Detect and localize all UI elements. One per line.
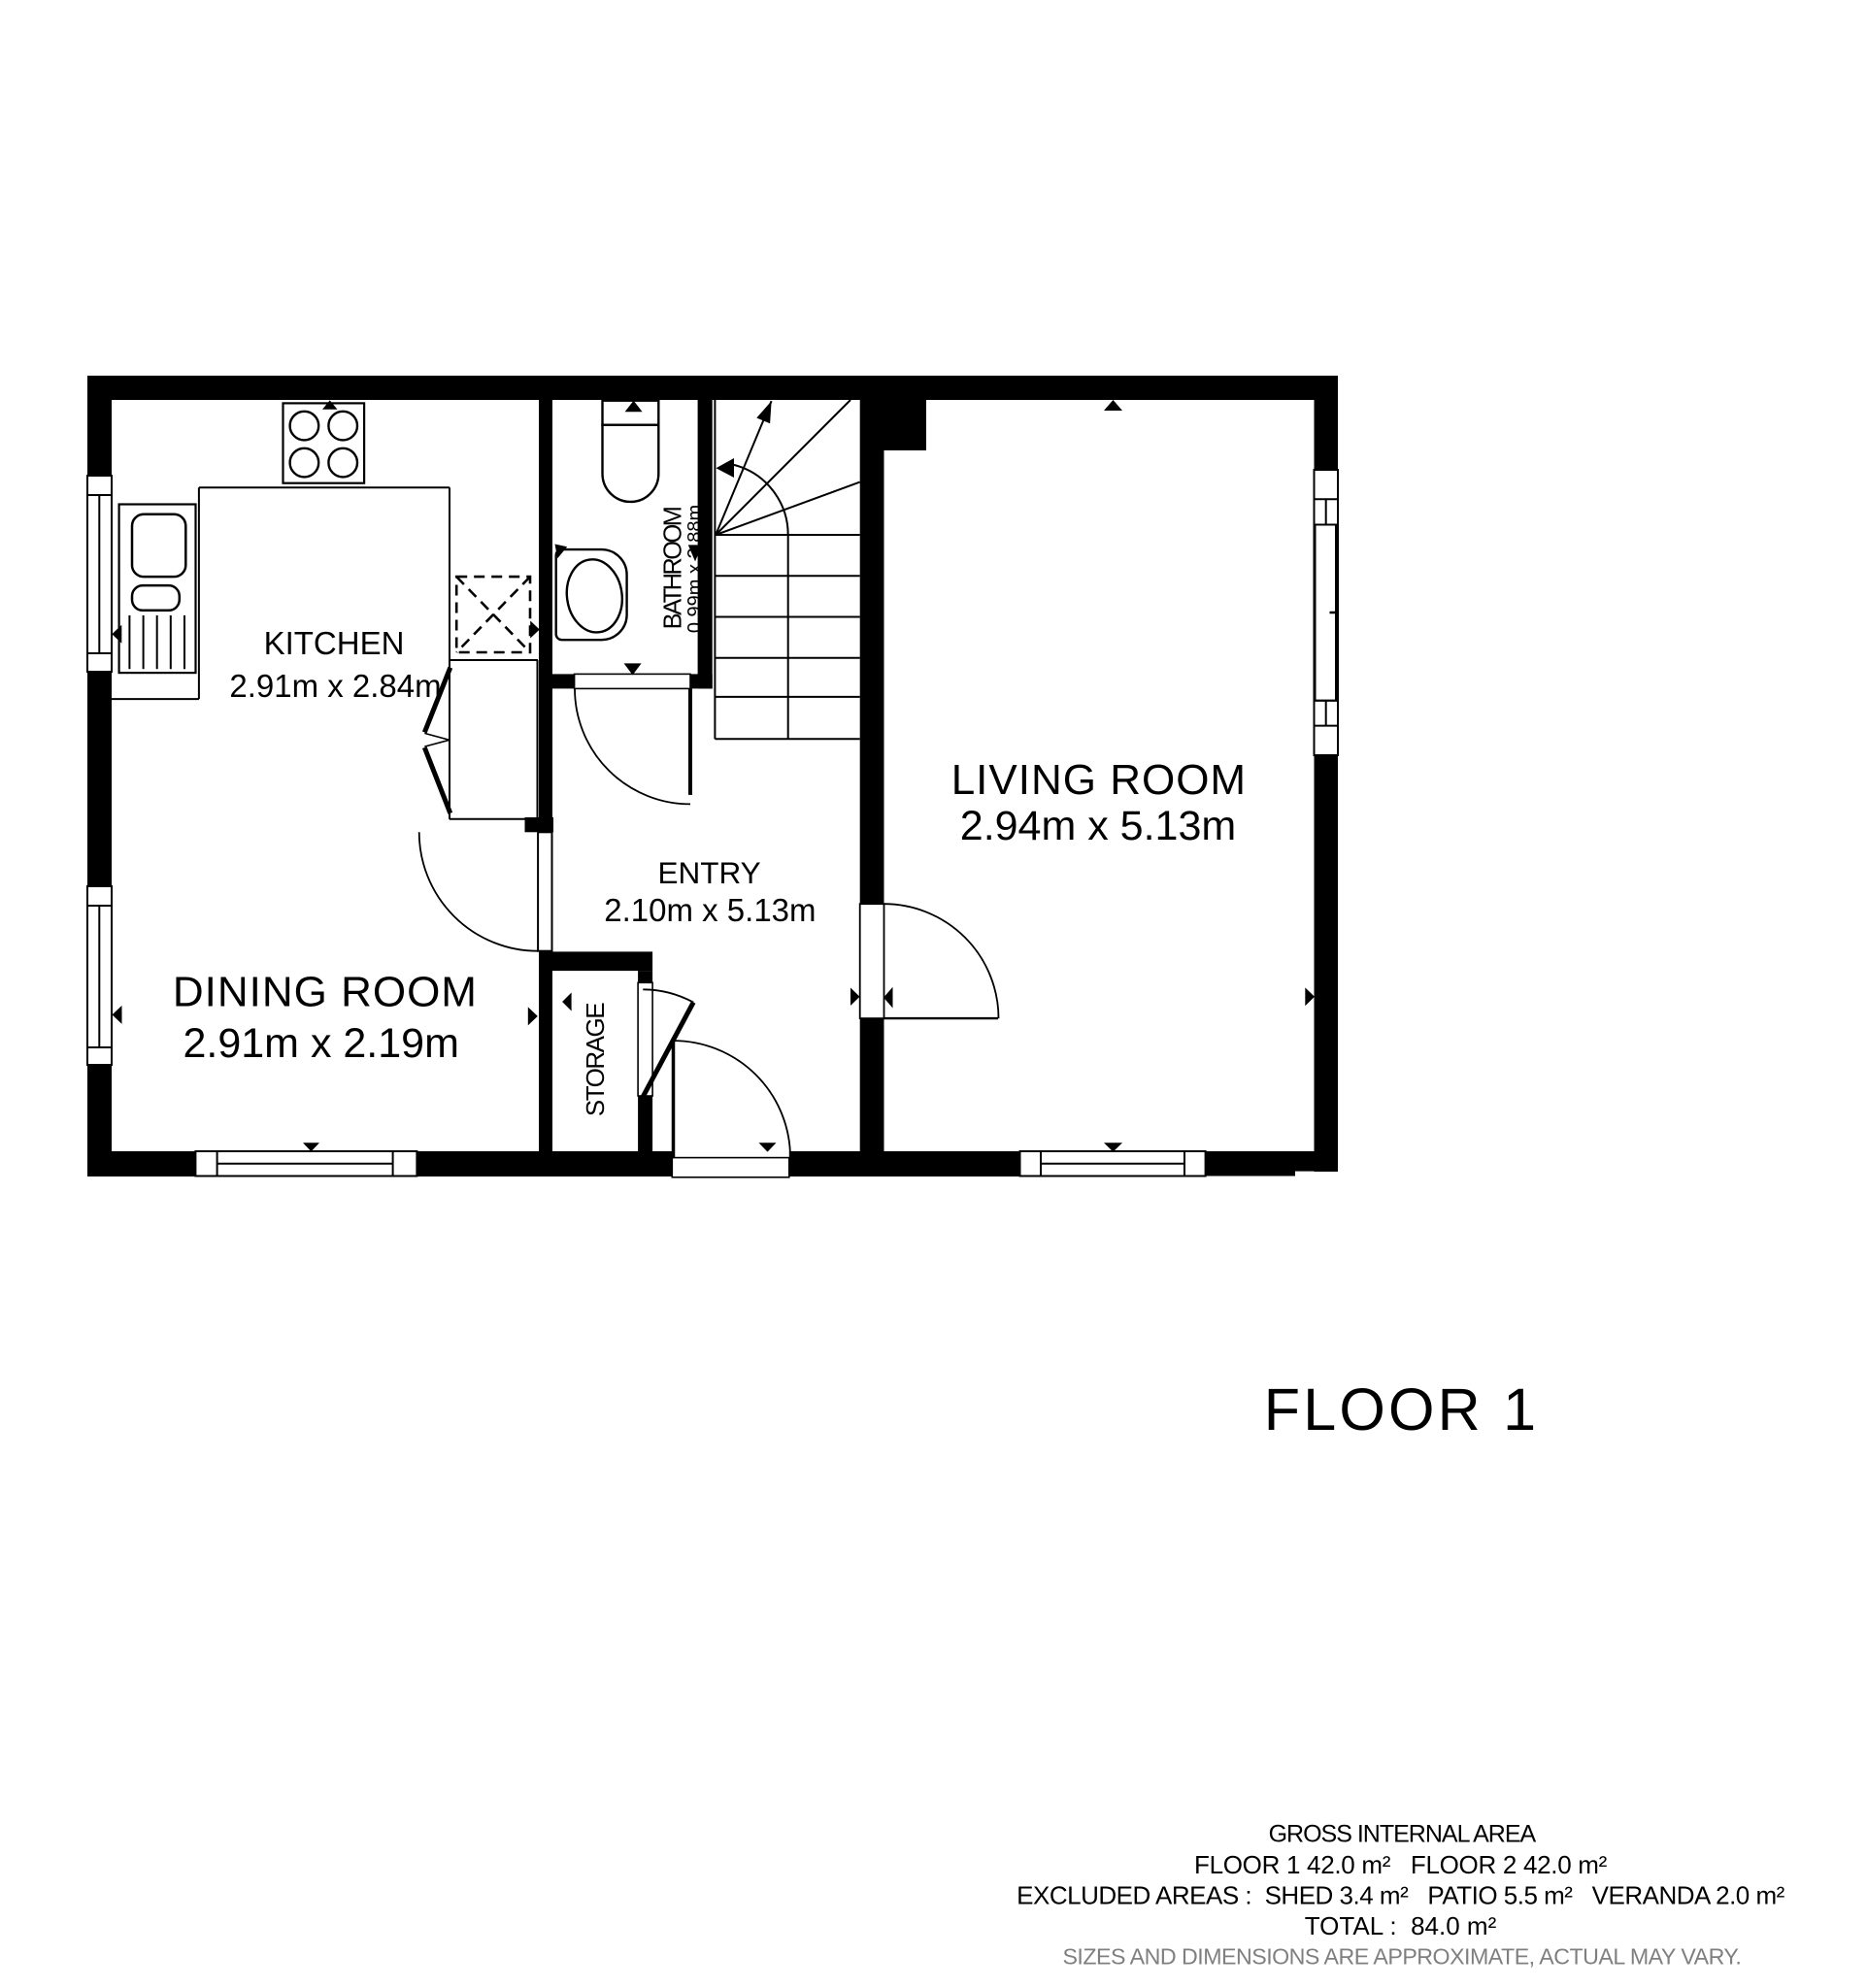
svg-text:STORAGE: STORAGE bbox=[581, 1003, 610, 1116]
svg-text:SIZES AND DIMENSIONS ARE APPRO: SIZES AND DIMENSIONS ARE APPROXIMATE, AC… bbox=[1062, 1944, 1741, 1970]
svg-text:TOTAL : 84.0 m²: TOTAL : 84.0 m² bbox=[1305, 1911, 1497, 1940]
svg-text:ENTRY: ENTRY bbox=[657, 855, 760, 890]
svg-text:GROSS INTERNAL AREA: GROSS INTERNAL AREA bbox=[1269, 1821, 1537, 1848]
svg-text:BATHROOM: BATHROOM bbox=[660, 507, 687, 629]
svg-text:EXCLUDED AREAS : SHED 3.4 m²: EXCLUDED AREAS : SHED 3.4 m² PATIO 5.5 m… bbox=[1017, 1881, 1784, 1910]
svg-text:LIVING ROOM: LIVING ROOM bbox=[951, 756, 1247, 804]
svg-text:2.94m x 5.13m: 2.94m x 5.13m bbox=[960, 803, 1236, 849]
svg-text:FLOOR 1: FLOOR 1 bbox=[1264, 1376, 1539, 1442]
svg-text:DINING ROOM: DINING ROOM bbox=[173, 969, 478, 1016]
svg-text:KITCHEN: KITCHEN bbox=[264, 625, 405, 661]
svg-text:FLOOR 1 42.0 m² FLOOR 2 42.0: FLOOR 1 42.0 m² FLOOR 2 42.0 m² bbox=[1194, 1850, 1608, 1879]
svg-text:2.91m x 2.19m: 2.91m x 2.19m bbox=[183, 1020, 458, 1067]
svg-text:2.10m x 5.13m: 2.10m x 5.13m bbox=[604, 892, 816, 928]
svg-text:2.91m x 2.84m: 2.91m x 2.84m bbox=[229, 668, 441, 704]
